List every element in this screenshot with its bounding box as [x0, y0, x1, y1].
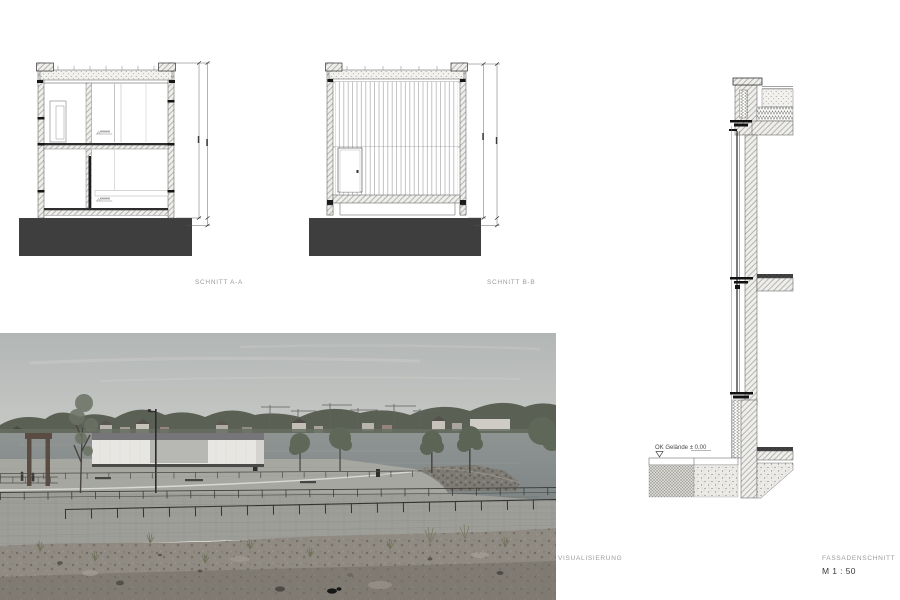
presentation-sheet: OK Gelände ± 0.00 [0, 0, 900, 600]
section-bb-foundation [309, 218, 481, 256]
visualization-photo [0, 333, 556, 600]
ground-level-marker: OK Gelände ± 0.00 [655, 445, 711, 457]
ground-level-label: OK Gelände ± 0.00 [655, 445, 707, 451]
section-bb-drawing [290, 45, 510, 265]
facade-base [730, 392, 793, 498]
facade-roof-detail [729, 78, 793, 135]
visualization-label: VISUALISIERUNG [558, 555, 622, 562]
facade-section-drawing: OK Gelände ± 0.00 [630, 60, 900, 500]
section-bb-dimensions [468, 62, 500, 227]
section-bb-building [326, 63, 468, 215]
pavilion-building [92, 433, 264, 467]
facade-section-label: FASSADENSCHNITT [822, 555, 895, 562]
facade-ground [649, 458, 738, 497]
section-aa-building [37, 63, 176, 218]
section-aa-foundation [19, 218, 192, 256]
section-bb-label: SCHNITT B-B [487, 279, 535, 286]
section-aa-drawing [10, 45, 215, 265]
scale-label: M 1 : 50 [822, 566, 856, 576]
section-aa-dimensions [176, 61, 210, 227]
section-aa-label: SCHNITT A-A [195, 279, 243, 286]
